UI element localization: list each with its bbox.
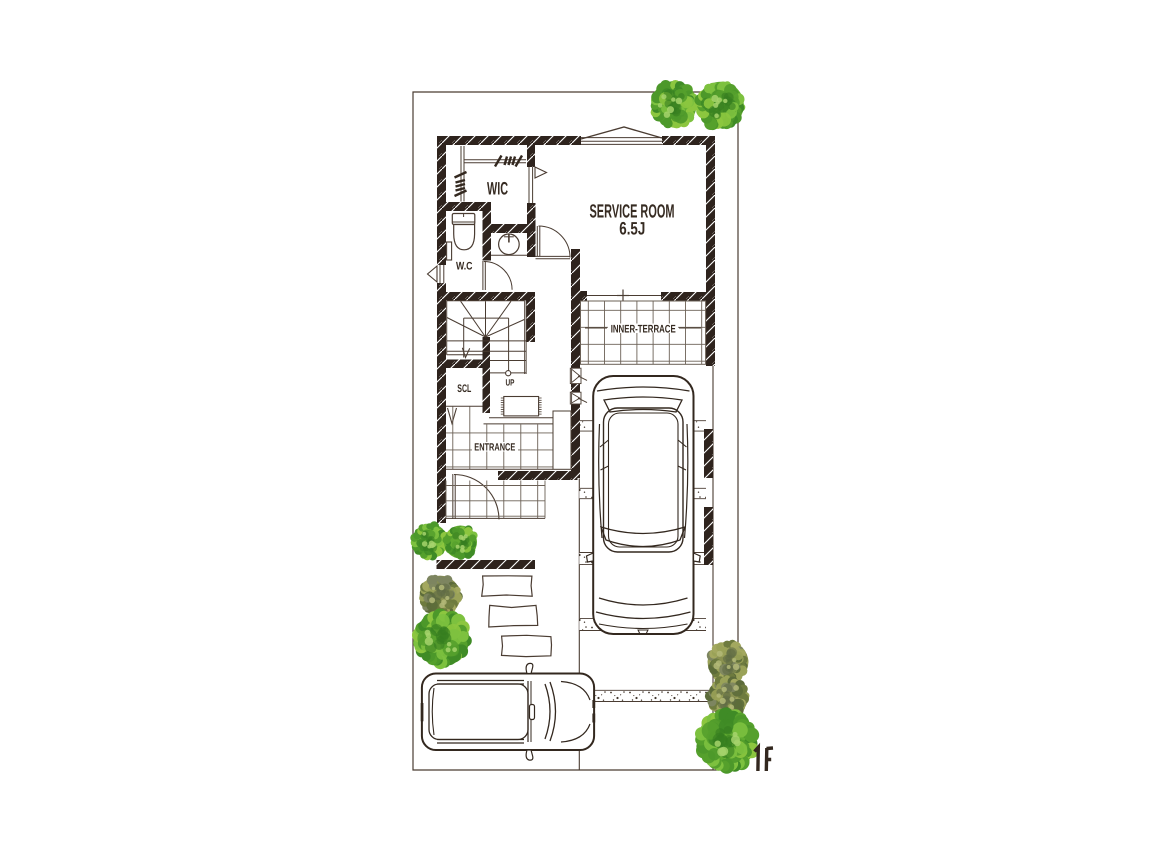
svg-text:INNER-TERRACE: INNER-TERRACE (611, 323, 676, 335)
svg-text:W.C: W.C (456, 261, 473, 273)
svg-text:6.5J: 6.5J (619, 219, 645, 239)
svg-text:ENTRANCE: ENTRANCE (474, 442, 515, 454)
svg-text:SCL: SCL (457, 383, 471, 395)
svg-text:WIC: WIC (487, 179, 508, 199)
svg-text:UP: UP (506, 378, 515, 388)
